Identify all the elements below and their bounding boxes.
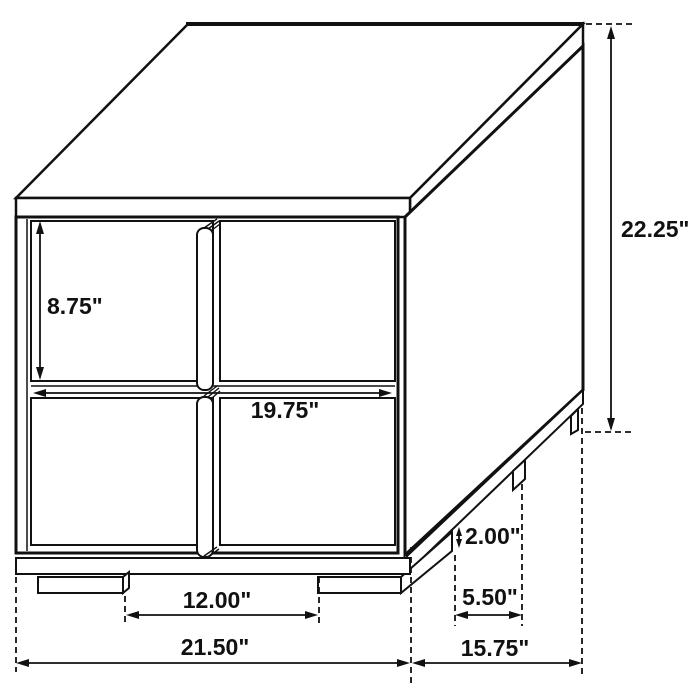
label-overall-height: 22.25" [621,216,689,242]
arrow-up-icon [607,26,615,39]
arrow-left-icon [126,611,139,619]
front-left-leg-side-face [123,572,129,593]
arrow-left-icon [16,659,29,667]
label-leg-height: 2.00" [465,523,521,549]
bottom-drawer-handle [197,397,213,557]
label-overall-width: 21.50" [181,634,249,660]
arrow-up-icon [456,527,462,536]
label-front-leg-spacing: 12.00" [183,587,251,613]
dimension-overall-height: 22.25" [585,24,689,432]
dimension-leg-height: 2.00" [456,523,521,549]
label-overall-depth: 15.75" [461,635,529,661]
arrow-down-icon [456,539,462,548]
arrow-down-icon [607,418,615,431]
top-drawer-handle [197,228,213,390]
label-drawer-height: 8.75" [47,293,103,319]
drawer-front-top-right [220,221,395,381]
arrow-right-icon [397,659,410,667]
arrow-left-icon [412,659,425,667]
top-front-edge-face [16,198,410,217]
arrow-left-icon [455,611,468,619]
dimension-front-leg-spacing: 12.00" [125,577,319,626]
arrow-right-icon [509,611,522,619]
label-side-leg-spacing: 5.50" [462,584,518,610]
label-drawer-width: 19.75" [251,397,319,423]
nightstand-dimension-diagram: 8.75" 19.75" 22.25" 2.00" [0,0,700,700]
drawer-front-bottom-left [31,398,213,545]
arrow-right-icon [569,659,582,667]
plinth-front [16,558,410,574]
front-left-leg [38,577,123,593]
dimension-drawing-canvas: 8.75" 19.75" 22.25" 2.00" [0,0,700,700]
front-right-leg [318,577,401,593]
arrow-right-icon [305,611,318,619]
